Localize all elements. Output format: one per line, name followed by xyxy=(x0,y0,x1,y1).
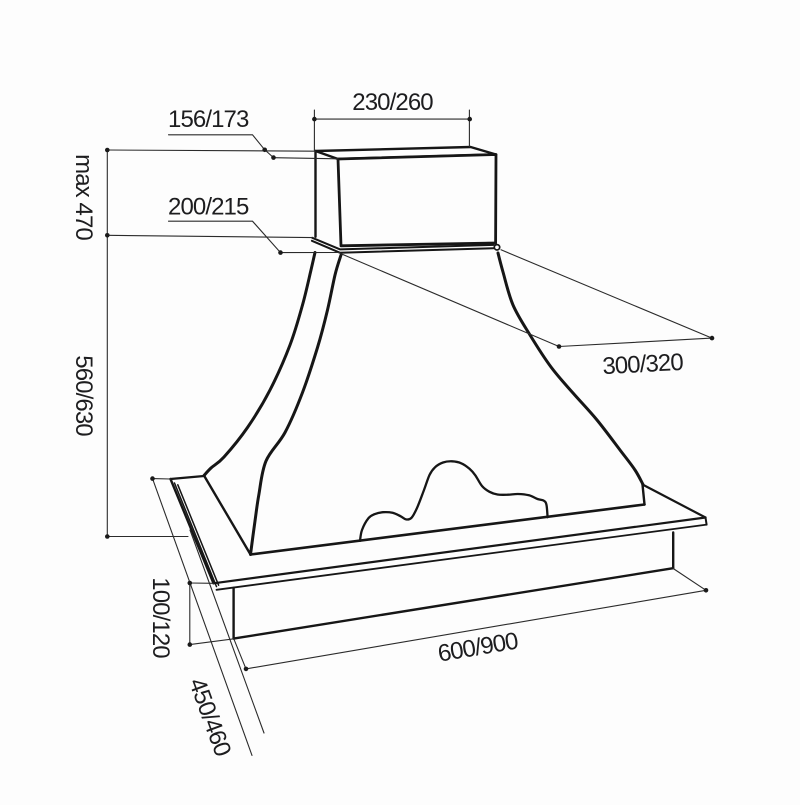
svg-text:230/260: 230/260 xyxy=(352,89,433,116)
svg-text:100/120: 100/120 xyxy=(147,577,174,658)
svg-text:156/173: 156/173 xyxy=(168,106,249,133)
svg-text:max 470: max 470 xyxy=(70,154,97,240)
svg-text:300/320: 300/320 xyxy=(602,349,684,380)
svg-text:560/630: 560/630 xyxy=(70,355,97,436)
svg-text:200/215: 200/215 xyxy=(168,194,249,221)
